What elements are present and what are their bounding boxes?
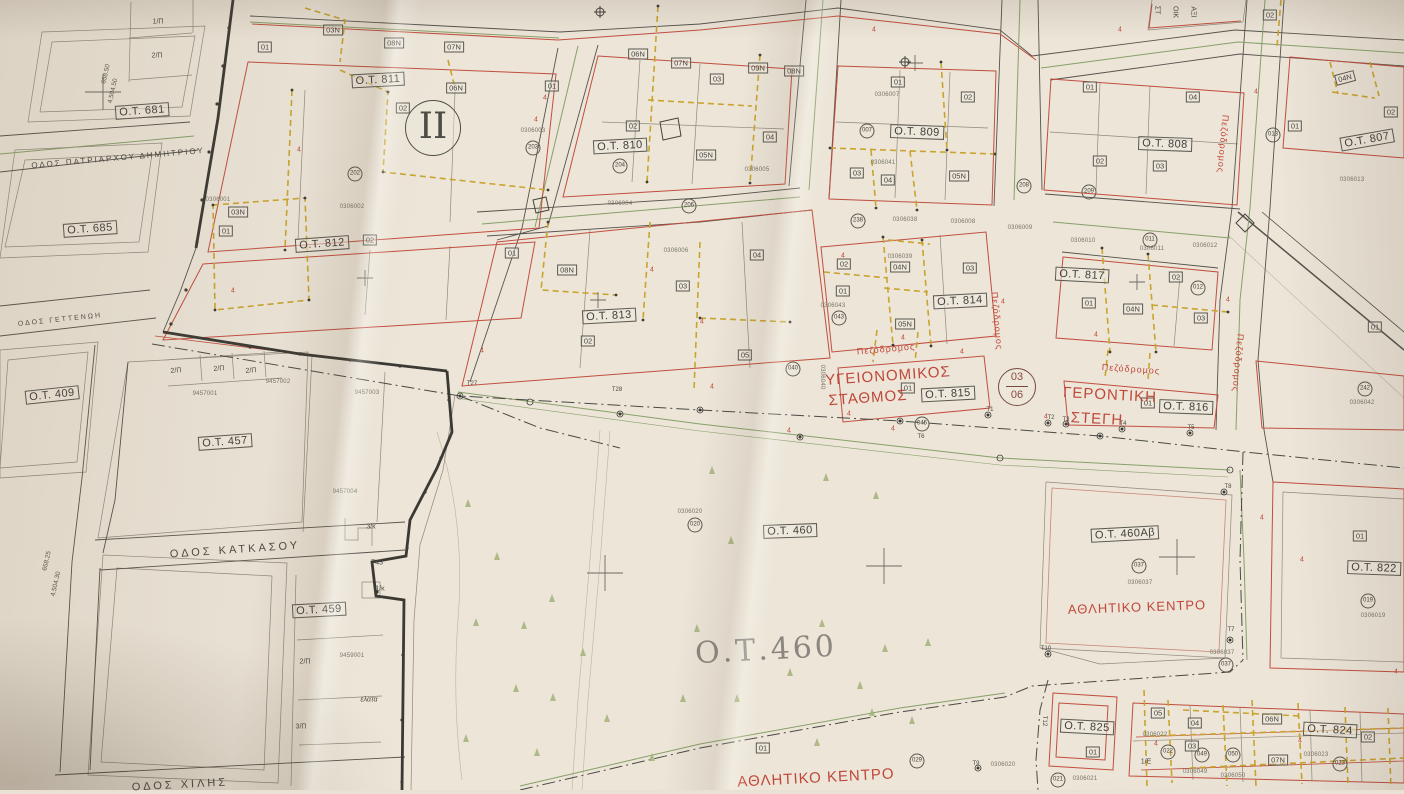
paper-map-photo: 44444444444444444444444444 0306001030600… xyxy=(0,0,1404,790)
photo-vignette xyxy=(0,0,1404,790)
